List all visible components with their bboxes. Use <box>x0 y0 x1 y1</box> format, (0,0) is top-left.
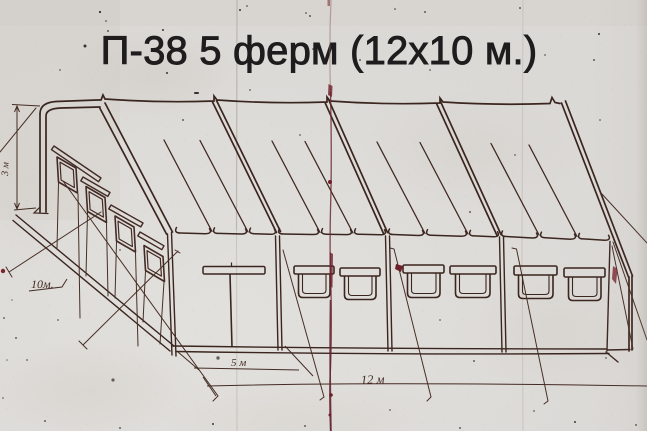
svg-text:12 м: 12 м <box>361 372 385 387</box>
svg-text:П-38 5 ферм (12х10 м.): П-38 5 ферм (12х10 м.) <box>101 29 538 73</box>
svg-text:3 м: 3 м <box>0 161 12 177</box>
svg-text:5 м: 5 м <box>231 357 246 369</box>
